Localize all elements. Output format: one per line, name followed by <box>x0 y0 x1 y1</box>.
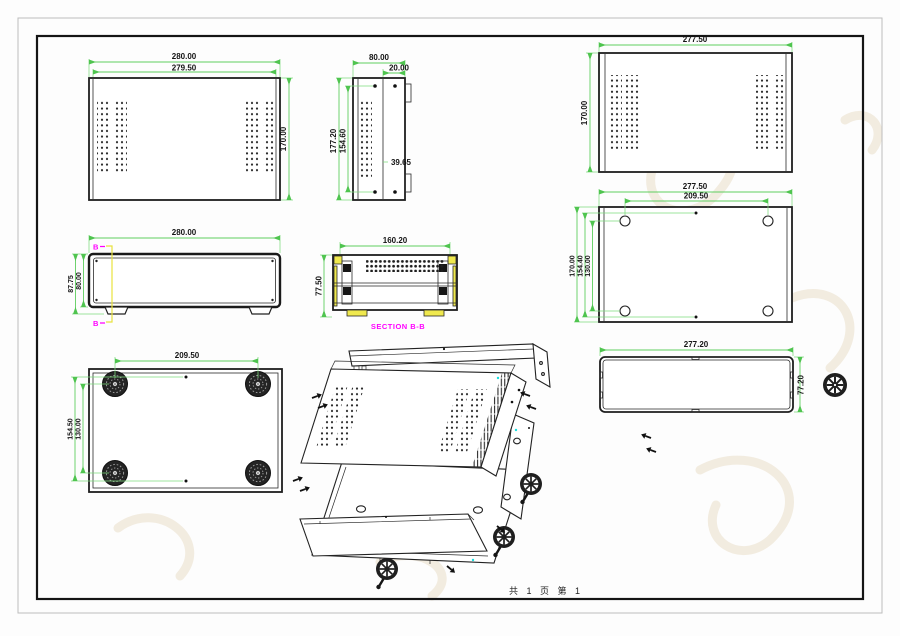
vent-perforation <box>756 75 769 150</box>
dim-label: 20.00 <box>389 64 410 73</box>
dim-label: 209.50 <box>175 351 200 360</box>
dim-label: 170.00 <box>279 126 288 151</box>
foot-front <box>105 307 128 314</box>
vent-perforation <box>97 99 110 174</box>
view-top-cover-outside: 280.00 279.50 170.00 <box>89 52 293 200</box>
view-front: B B 280.00 87.75 80.00 <box>68 228 280 328</box>
dim-label: 154.40 <box>578 255 585 277</box>
dim-label: 154.60 <box>339 128 348 153</box>
dim-label: 130.00 <box>585 255 592 277</box>
dim-label: 209.50 <box>684 192 709 201</box>
dim-label: 170.00 <box>570 255 577 277</box>
foot-front <box>249 307 272 314</box>
dim-label: 277.50 <box>683 35 708 44</box>
dim-label: 87.75 <box>68 275 75 293</box>
vent-perforation <box>263 99 275 174</box>
dim-label: 77.50 <box>315 275 324 296</box>
vent-perforation <box>246 99 259 174</box>
dim-label: 130.00 <box>76 418 83 440</box>
exploded-top-cover <box>301 361 526 476</box>
center-hole <box>185 376 188 379</box>
dim-label: 80.00 <box>369 53 390 62</box>
dim-label: 39.65 <box>391 158 412 167</box>
section-marker-bottom: B <box>93 319 99 328</box>
dim-label: 277.20 <box>684 340 709 349</box>
exploded-front-panel <box>300 514 487 556</box>
vent-perforation <box>359 100 372 178</box>
dim-label: 154.50 <box>68 418 75 440</box>
rear-panel-outline <box>600 357 793 412</box>
dim-label: 280.00 <box>172 52 197 61</box>
vent-perforation <box>626 75 639 150</box>
center-hole <box>695 316 698 319</box>
vent-perforation <box>773 75 785 150</box>
view-rear-panel: 277.20 77.20 <box>600 340 847 412</box>
sheet-footer: 共 1 页 第 1 <box>509 585 583 596</box>
drawing-sheet: 280.00 279.50 170.00 80.00 20.00 177.20 … <box>0 0 900 636</box>
dim-label: 80.00 <box>76 272 83 290</box>
view-base-plate: 277.50 209.50 170.00 154.40 130.00 <box>570 182 793 322</box>
dim-label: 277.50 <box>683 182 708 191</box>
vent-perforation <box>609 75 622 150</box>
page-number-text: 共 1 页 第 1 <box>509 585 583 596</box>
vent-perforation <box>114 99 127 174</box>
view-side: 80.00 20.00 177.20 154.60 39.65 <box>329 53 412 200</box>
dim-label: 160.20 <box>383 236 408 245</box>
dim-label: 280.00 <box>172 228 197 237</box>
view-top-cover-inside: 277.50 170.00 <box>580 35 792 172</box>
section-marker-top: B <box>93 243 99 252</box>
dim-label: 177.20 <box>329 128 338 153</box>
engineering-drawing: 280.00 279.50 170.00 80.00 20.00 177.20 … <box>0 0 900 636</box>
center-hole <box>185 480 188 483</box>
section-title: SECTION B-B <box>371 322 425 331</box>
dim-label: 279.50 <box>172 64 197 73</box>
view-bottom-feet: 209.50 154.50 130.00 <box>68 351 283 492</box>
dim-label: 77.20 <box>797 374 806 395</box>
front-panel-outline <box>89 254 280 307</box>
center-hole <box>695 212 698 215</box>
view-section-bb: 160.20 77.50 SECTION B-B <box>315 236 458 331</box>
dim-label: 170.00 <box>580 100 589 125</box>
vent-perforation <box>366 260 444 272</box>
